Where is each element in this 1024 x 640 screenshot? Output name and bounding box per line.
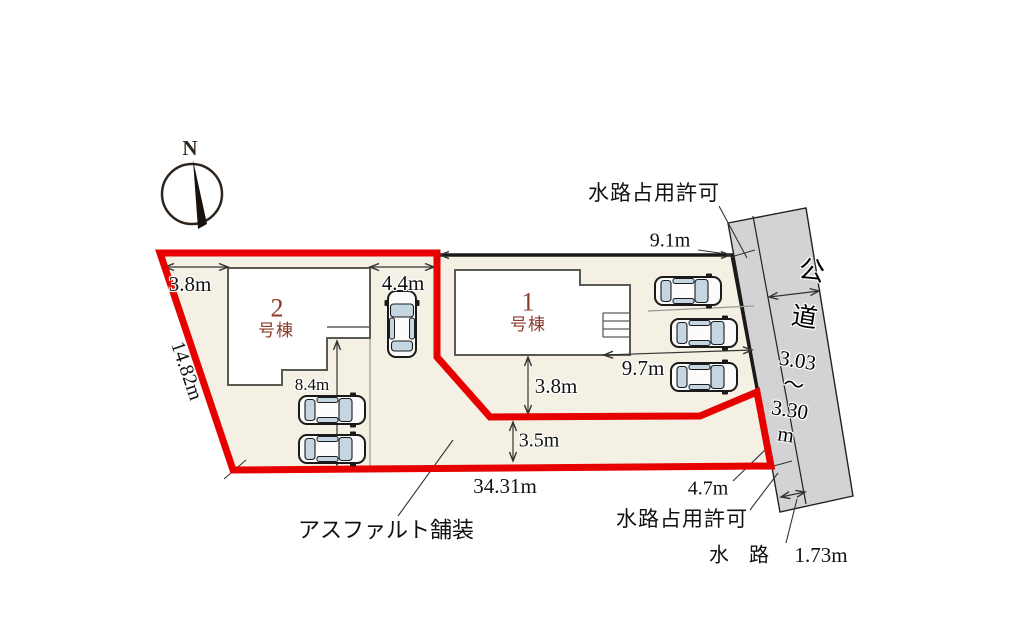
car-icon — [671, 316, 737, 351]
dim-road-frontage-label: 4.7m — [688, 479, 729, 500]
dim-north-edge-label: 9.1m — [650, 231, 691, 252]
dim-access-strip-label: 3.5m — [519, 431, 560, 452]
car-icon — [299, 393, 365, 428]
north-label: N — [182, 137, 197, 159]
road-width-min: 3.03 — [777, 346, 817, 376]
building-1-number: 1 — [522, 288, 535, 315]
waterway-name-label: 水 路 — [709, 546, 769, 567]
waterway-permit-top-label: 水路占用許可 — [588, 182, 720, 204]
car-icon — [655, 274, 721, 309]
north-compass-icon — [162, 160, 222, 229]
dim-waterway-width-label: 1.73m — [794, 544, 847, 566]
building-2-number: 2 — [271, 294, 284, 321]
road-name-char-2: 道 — [789, 301, 819, 335]
dim-west-top-label: 3.8m — [169, 273, 212, 295]
road-width-unit: m — [776, 421, 796, 448]
road-width-max: 3.30 — [770, 395, 810, 425]
building-1-suffix: 号棟 — [510, 316, 546, 334]
dim-south-setback-label: 3.8m — [535, 375, 578, 397]
car-icon — [385, 291, 420, 357]
dim-south-edge-label: 34.31m — [473, 475, 537, 497]
building-2-suffix: 号棟 — [258, 322, 294, 340]
asphalt-pavement-label: アスファルト舗装 — [298, 518, 474, 541]
site-plan: N 3.8m 4.4m 14.82m 8.4m 9.1m 9.7m 3.8m 3… — [0, 0, 1024, 640]
waterway-permit-bottom-label: 水路占用許可 — [616, 508, 748, 530]
dim-driveway-label: 8.4m — [295, 376, 329, 394]
car-icon — [299, 432, 365, 467]
road-width-tilde: 〜 — [781, 372, 806, 400]
dim-parking-bay-label: 4.4m — [382, 272, 425, 294]
road-name-char-1: 公 — [797, 255, 827, 289]
car-icon — [671, 360, 737, 395]
dim-east-setback-label: 9.7m — [622, 357, 665, 379]
